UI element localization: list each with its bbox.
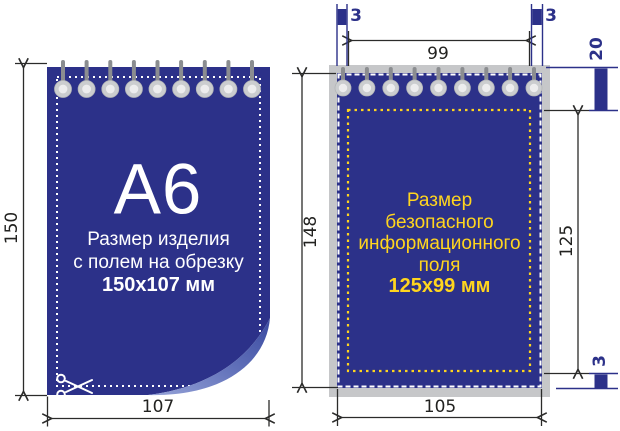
left-size-value: 150x107 мм xyxy=(47,274,270,297)
right-safe-size-value: 125x99 мм xyxy=(337,276,542,298)
dim-label-margin-left-3: 3 xyxy=(350,6,362,26)
left-caption-line2: с полем на обрезку xyxy=(47,251,270,274)
print-layout-diagram: A6 Размер изделия с полем на обрезку 150… xyxy=(0,0,620,431)
left-spiral-binding xyxy=(55,60,261,98)
left-format-label: A6 xyxy=(114,150,203,231)
right-caption: Размер безопасного информационного поля … xyxy=(337,190,542,298)
left-caption-line1: Размер изделия xyxy=(47,228,270,251)
dim-label-safe-width-99: 99 xyxy=(427,44,449,64)
dim-label-trim-height-148: 148 xyxy=(301,216,321,248)
dim-label-height-150: 150 xyxy=(2,212,22,244)
dim-label-margin-bottom-3: 3 xyxy=(590,355,610,367)
dim-label-trim-width-105: 105 xyxy=(424,397,456,417)
right-caption-line2: безопасного xyxy=(337,212,542,234)
dim-label-binding-zone-20: 20 xyxy=(587,37,607,61)
right-caption-line3: информационного xyxy=(337,233,542,255)
right-caption-line1: Размер xyxy=(337,190,542,212)
left-caption: Размер изделия с полем на обрезку 150x10… xyxy=(47,228,270,297)
right-spiral-binding xyxy=(335,67,542,96)
dim-label-width-107: 107 xyxy=(142,397,174,417)
dim-label-safe-height-125: 125 xyxy=(557,225,577,257)
right-caption-line4: поля xyxy=(337,255,542,277)
dim-label-margin-right-3: 3 xyxy=(545,6,557,26)
